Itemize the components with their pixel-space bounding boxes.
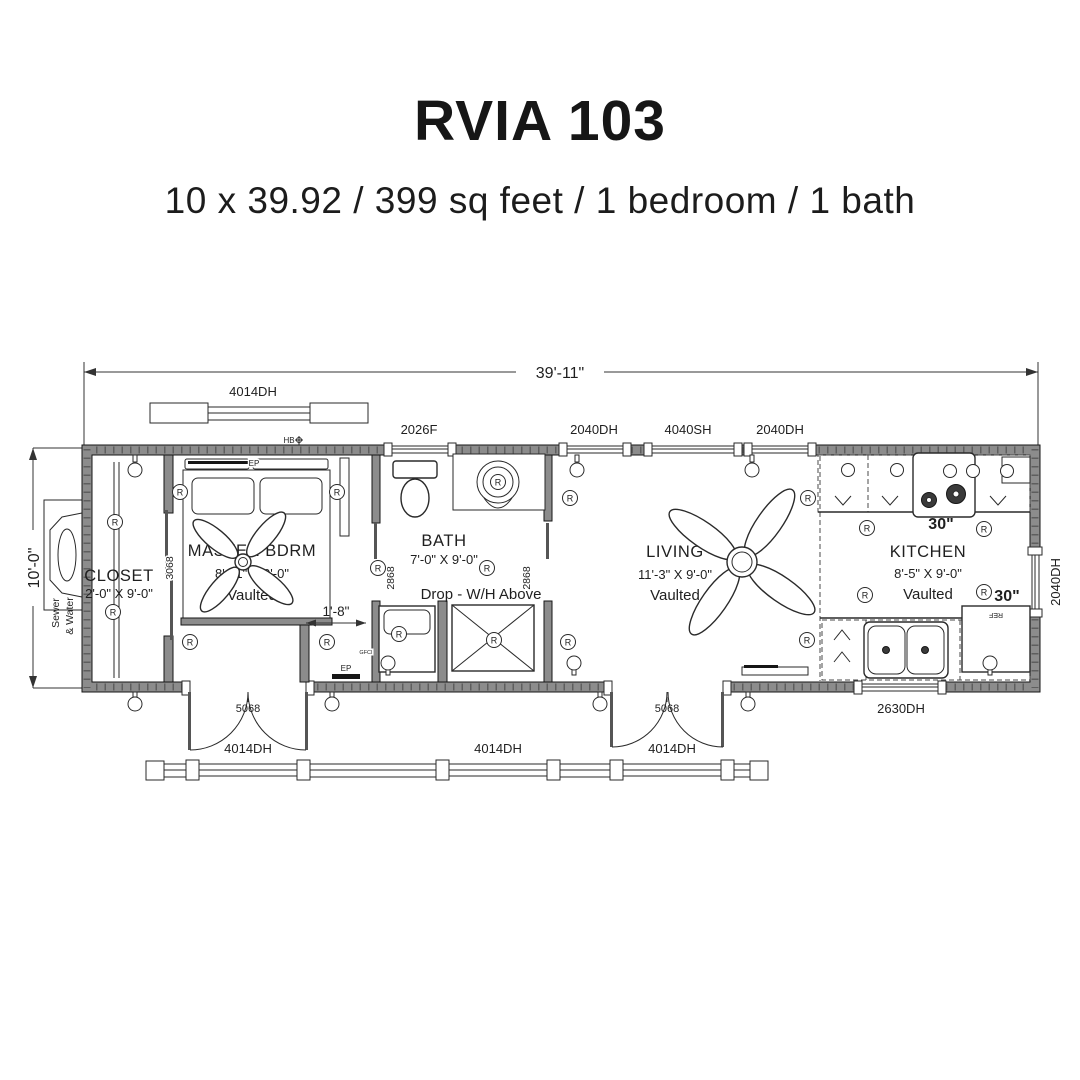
light-r: R (565, 638, 572, 648)
gfci-label: GFCI (359, 650, 373, 656)
bath-size: 7'-0" X 9'-0" (410, 552, 478, 567)
window-2040DH-top-1: 2040DH (559, 422, 631, 456)
dimension-top-text-backing: 39'-11" (516, 362, 604, 382)
living-note: Vaulted (650, 587, 700, 604)
window-4040SH: 4040SH (644, 422, 742, 456)
light-r: R (324, 638, 331, 648)
light-r: R (334, 488, 341, 498)
door-2868-label-1: 2868 (385, 566, 397, 590)
light-r: R (396, 630, 403, 640)
light-r: R (495, 478, 502, 488)
light-r: R (862, 591, 869, 601)
media-console (742, 667, 808, 675)
french-door-2: 5068 (604, 681, 731, 747)
entry-offset-label: 1'-8" (323, 604, 350, 619)
closet: CLOSET 2'-0" X 9'-0" (84, 462, 154, 678)
window-4040SH-label: 4040SH (665, 422, 712, 437)
bath-note: Drop - W/H Above (421, 586, 542, 603)
floor-plan-page: RVIA 103 10 x 39.92 / 399 sq feet / 1 be… (0, 0, 1080, 1080)
floor-plan-drawing: 39'-11" 10'-0" Sewer & Water (0, 0, 1080, 1080)
bottom-deck: 4014DH 4014DH 4014DH (146, 741, 768, 781)
overall-depth-label: 10'-0" (26, 548, 43, 589)
light-r: R (804, 636, 811, 646)
light-r: R (864, 524, 871, 534)
kitchen-note: Vaulted (903, 586, 953, 603)
light-r: R (177, 488, 184, 498)
deck-window-label-1: 4014DH (224, 741, 272, 756)
refrigerator-label: REF (989, 611, 1003, 618)
closet-name: CLOSET (84, 567, 154, 585)
window-2630DH: 2630DH (854, 681, 946, 716)
sewer-label-1: Sewer (50, 598, 62, 628)
light-r: R (110, 608, 117, 618)
light-r: R (187, 638, 194, 648)
ep-label: EP (341, 664, 352, 673)
light-r: R (981, 525, 988, 535)
light-r: R (484, 564, 491, 574)
top-porch: 4014DH (150, 384, 368, 423)
sewer-label-2: & Water (64, 597, 76, 635)
window-2040DH-label: 2040DH (570, 422, 618, 437)
closet-size: 2'-0" X 9'-0" (85, 586, 153, 601)
ceiling-fan-living (663, 483, 822, 642)
light-r: R (112, 518, 119, 528)
light-r: R (805, 494, 812, 504)
kitchen: 30" KITCHEN 8'-5" X 9'-0" Vaulted (818, 453, 1030, 681)
hose-bib-label: HB (283, 436, 294, 445)
light-r: R (491, 636, 498, 646)
light-r: R (567, 494, 574, 504)
deck-window-label-2: 4014DH (474, 741, 522, 756)
window-2630DH-label: 2630DH (877, 701, 925, 716)
fridge-width-label: 30" (994, 588, 1019, 605)
toilet-bowl (401, 479, 429, 517)
window-2026F-label: 2026F (401, 422, 438, 437)
window-2040DH-label-2: 2040DH (756, 422, 804, 437)
living-size: 11'-3" X 9'-0" (638, 567, 712, 582)
window-2040DH-right: 2040DH (1028, 547, 1063, 617)
window-2026F: 2026F (384, 422, 456, 456)
kitchen-size: 8'-5" X 9'-0" (894, 566, 962, 581)
bed-ep-label: EP (249, 459, 260, 468)
range (913, 453, 975, 517)
overall-width-label-front: 39'-11" (536, 365, 584, 382)
master-bedroom: EP MASTER BDRM 8'-11" X 9'-0" Vaulted (181, 459, 332, 625)
range-width-label: 30" (928, 516, 953, 533)
door-5068-label-1: 5068 (236, 703, 260, 715)
bath-name: BATH (421, 532, 466, 550)
hitch-sewer-water: Sewer & Water (44, 500, 82, 635)
light-r: R (981, 588, 988, 598)
light-r: R (375, 564, 382, 574)
deck-window-label-3: 4014DH (648, 741, 696, 756)
window-2040DH-right-label: 2040DH (1048, 558, 1063, 606)
hose-bib: HB (283, 436, 303, 445)
door-5068-label-2: 5068 (655, 703, 679, 715)
kitchen-name: KITCHEN (890, 543, 967, 561)
porch-window-label: 4014DH (229, 384, 277, 399)
window-2040DH-top-2: 2040DH (744, 422, 816, 456)
living-room: LIVING 11'-3" X 9'-0" Vaulted (638, 483, 821, 675)
living-name: LIVING (646, 543, 704, 561)
french-door-1: 5068 (182, 681, 314, 750)
toilet-tank (393, 461, 437, 478)
door-3068-label: 3068 (164, 556, 176, 580)
